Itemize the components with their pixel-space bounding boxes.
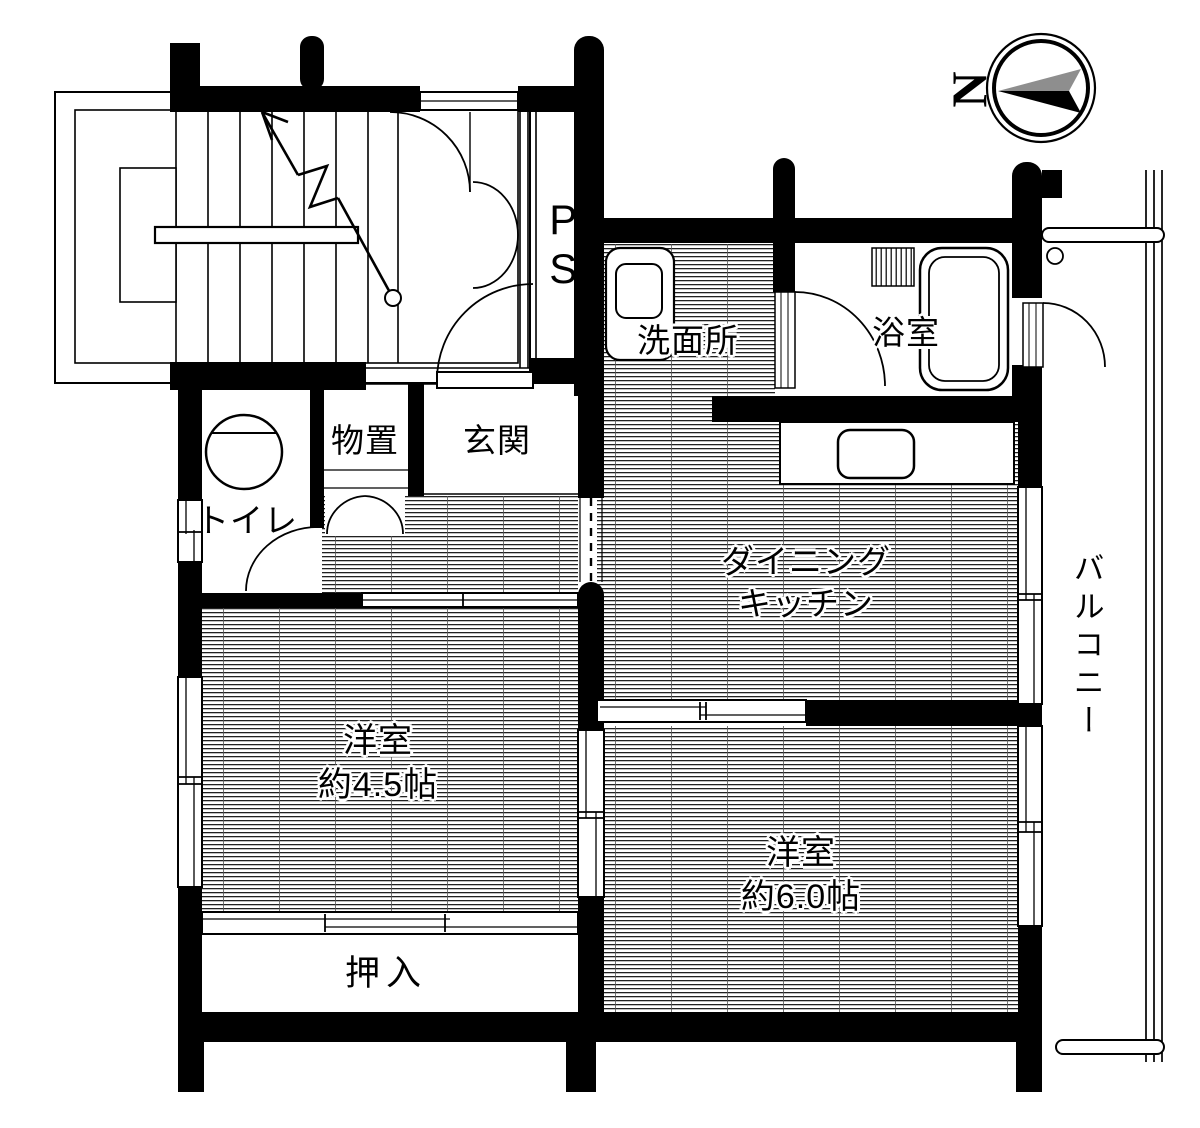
balcony-label: バルコニー <box>1066 552 1106 742</box>
dining-kitchen-balcony-window <box>1018 487 1042 704</box>
corridor-door-arcs <box>390 112 518 288</box>
bathroom-label: 浴室 <box>872 312 940 354</box>
compass-north-label: N <box>942 62 996 116</box>
western-room-small-name: 洋室 <box>318 720 438 764</box>
western-room-small-label: 洋室 約4.5帖 <box>318 720 438 807</box>
storage-label: 物置 <box>331 420 399 462</box>
pipe-space-lines <box>520 110 536 368</box>
stairwell-window <box>420 92 518 110</box>
western-room-small-size: 約4.5帖 <box>318 764 438 808</box>
dining-kitchen-line2: キッチン <box>721 583 891 625</box>
balcony-partition-bottom <box>1056 1040 1164 1054</box>
balcony-partition-top <box>1042 228 1164 242</box>
washroom-label: 洗面所 <box>637 320 739 362</box>
hallway-room-sliding-door <box>362 593 578 607</box>
closet-label: 押入 <box>345 952 427 997</box>
closet-sliding-door <box>202 912 578 934</box>
stair-up-arrow-icon <box>262 112 393 298</box>
compass-icon <box>987 34 1095 142</box>
storage-folding-door <box>324 470 408 536</box>
dining-kitchen-line1: ダイニング <box>721 541 891 583</box>
bathroom-door <box>775 292 885 388</box>
balcony-drain-icon <box>1047 248 1063 264</box>
room-divider-sliding-door <box>578 730 604 897</box>
entrance-label: 玄関 <box>463 420 531 462</box>
dining-kitchen-label: ダイニング キッチン <box>721 541 891 625</box>
floorplan-drawing <box>0 0 1200 1128</box>
western-room-large-size: 約6.0帖 <box>741 876 861 920</box>
kitchen-sink-icon <box>838 430 914 478</box>
dk-room-sliding-door <box>597 700 806 722</box>
balcony-railing <box>1146 170 1162 1062</box>
shower-niche-icon <box>872 248 914 286</box>
washroom-doorway-floor <box>597 396 712 422</box>
front-door-leaf <box>437 372 533 388</box>
western-room-large-name: 洋室 <box>741 832 861 876</box>
toilet-label: トイレ <box>196 500 298 542</box>
floor-hatches <box>202 244 1018 1012</box>
toilet-fixture-icon <box>206 415 282 489</box>
western-room-large-label: 洋室 約6.0帖 <box>741 832 861 919</box>
western-room-large-balcony-window <box>1018 726 1042 926</box>
pipe-space-label: PS <box>536 196 590 294</box>
floorplan-page: N PS 洗面所 浴室 物置 玄関 トイレ ダイニング キッチン バルコニー 洋… <box>0 0 1200 1128</box>
stair-landing-rail <box>155 227 358 243</box>
balcony-door <box>1023 303 1105 367</box>
kitchen-counter <box>780 422 1014 484</box>
stair-newel-post <box>385 290 401 306</box>
western-room-small-window <box>178 677 202 887</box>
stairwell <box>55 92 536 384</box>
